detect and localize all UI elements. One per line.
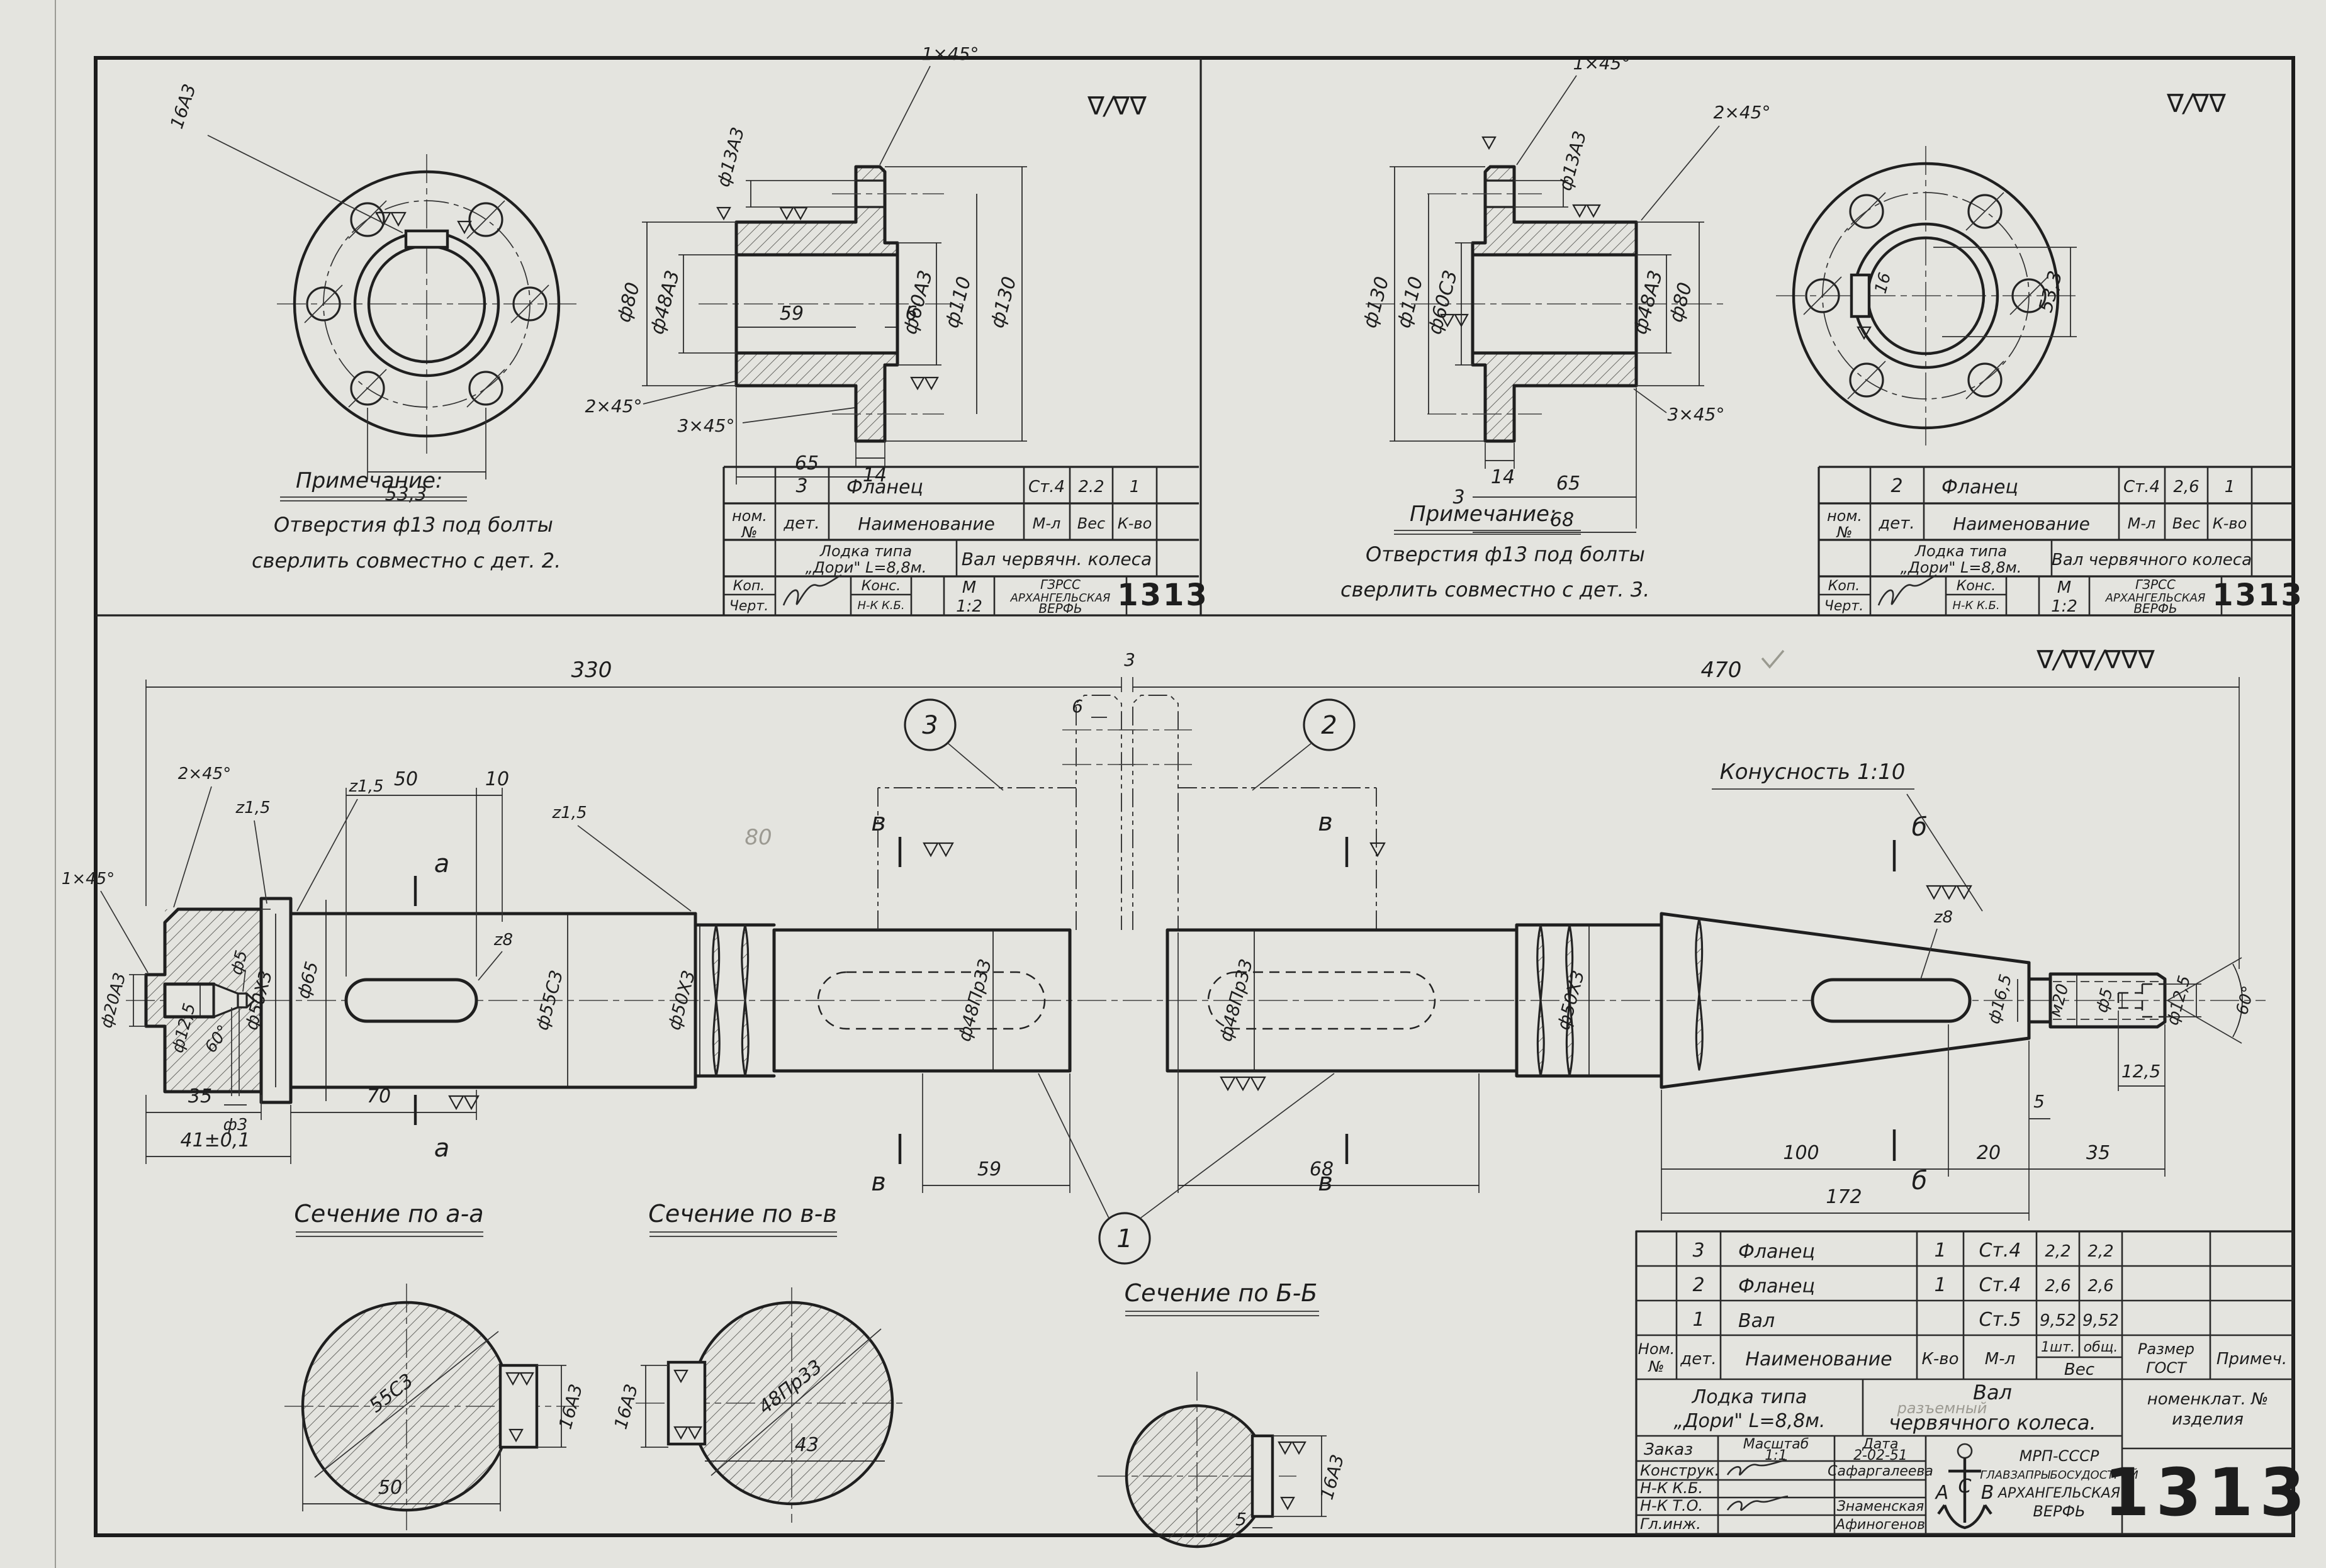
logo-letter-c: С	[1958, 1476, 1972, 1498]
tb-project1: Лодка типа	[1692, 1386, 1807, 1408]
tb-scale: 1:2	[956, 597, 982, 616]
finish-triangles-icon	[1927, 886, 1971, 899]
dim-d165: ф16,5	[1984, 972, 2016, 1026]
finish-triangle-icon	[1281, 1498, 1294, 1509]
finish-triangles-icon	[1221, 1077, 1265, 1090]
tb-part2: червячного колеса.	[1889, 1411, 2096, 1435]
tb-konstruk: Конструк.	[1640, 1462, 1719, 1479]
tb-zakaz: Заказ	[1644, 1440, 1693, 1459]
tb-glinzh: Гл.инж.	[1640, 1515, 1701, 1533]
tb-date: 2-02-51	[1853, 1448, 1907, 1464]
dim-53-3: 53,3	[2035, 269, 2067, 315]
tb-kons: Конс.	[862, 578, 901, 594]
tb-scale-label: М	[962, 578, 976, 597]
shaft-seat1: в в	[774, 808, 1070, 1197]
tb-project1: Лодка типа	[1914, 542, 2007, 560]
tb-qty: 1	[1130, 478, 1140, 496]
tb-project1: Лодка типа	[819, 542, 912, 560]
dim-35r: 35	[2086, 1142, 2110, 1164]
dim-d110: ф110	[1393, 274, 1427, 330]
tb-chert: Черт.	[1824, 598, 1863, 614]
tb-assembly: Вал червячн. колеса	[962, 549, 1152, 569]
row3-mat: Ст.5	[1979, 1309, 2021, 1331]
dim-keyway: 16	[1872, 271, 1896, 296]
dim-50: 50	[394, 768, 418, 790]
section-a-label-bottom: а	[434, 1134, 450, 1163]
dim-35l: 35	[188, 1085, 212, 1107]
dim-d130: ф130	[1359, 274, 1393, 330]
note-title: Примечание:	[296, 468, 442, 493]
finish-mark-tr: ∇/∇∇	[2166, 89, 2226, 118]
note-title: Примечание:	[1410, 501, 1556, 527]
logo-letter-v: В	[1981, 1482, 1994, 1504]
tb-scale: 1:2	[2051, 597, 2077, 616]
tb-nkkb: Н-К К.Б.	[1640, 1479, 1703, 1497]
tb-project2: „Дори" L=8,8м.	[1901, 559, 2022, 576]
dim-r8-right: z8	[1933, 908, 1953, 927]
tb-project2: „Дори" L=8,8м.	[806, 559, 927, 576]
tb-org3: ВЕРФЬ	[1038, 601, 1082, 616]
row3-w2: 9,52	[2082, 1311, 2119, 1330]
section-vv-label: Сечение по в-в	[648, 1200, 836, 1228]
tb-kons: Конс.	[1957, 578, 1996, 594]
flange3-section-view: 1×45° ф13А3 ф80 ф48А3 59 6 ф60А3 ф110 ф1…	[585, 43, 1027, 486]
dim-2x45: 2×45°	[178, 764, 231, 783]
shaft-55-section: а а	[291, 849, 695, 1163]
drawing-number: 1313	[2104, 1454, 2311, 1531]
dim-59: 59	[977, 1158, 1001, 1180]
dim-hole: ф13А3	[712, 125, 748, 189]
signature	[784, 575, 841, 605]
flange2-title-block: 2 Фланец Ст.4 2,6 1 ном. № дет. Наименов…	[1819, 467, 2304, 616]
tb-h-ves: Вес	[1077, 515, 1105, 532]
tb-h-no: №	[741, 524, 758, 541]
taper-note: Конусность 1:10	[1720, 759, 1906, 785]
tb-org1: ГЗРСС	[1040, 577, 1081, 592]
balloon-2-number: 2	[1321, 711, 1337, 740]
finish-triangles-icon	[780, 208, 807, 219]
logo-letter-a: А	[1935, 1482, 1949, 1504]
section-v-label-top: в	[871, 808, 886, 837]
keyway-notch	[500, 1365, 537, 1447]
row2-qty: 1	[1934, 1274, 1946, 1296]
tb-project2: „Дори" L=8,8м.	[1674, 1410, 1826, 1432]
h-ml: М-л	[1985, 1350, 2015, 1369]
note-line1: Отверстия ф13 под болты	[274, 513, 553, 537]
dim-65: 65	[795, 452, 819, 474]
dim-1x45: 1×45°	[62, 870, 115, 888]
tb-nkto: Н-К Т.О.	[1640, 1497, 1703, 1515]
row1-name: Фланец	[1738, 1241, 1815, 1263]
row2-det: 2	[1692, 1274, 1704, 1296]
h-sht: 1шт.	[2041, 1340, 2075, 1355]
tb-konstruk-name: Сафаргалеева	[1828, 1464, 1933, 1479]
tb-h-nom: ном.	[732, 507, 767, 525]
tb-kop: Коп.	[733, 578, 765, 594]
tb-h-kvo: К-во	[2213, 515, 2247, 532]
shaft-left-end	[146, 909, 261, 1096]
h-obsh: общ.	[2084, 1340, 2118, 1355]
dim-d5r: ф5	[2093, 986, 2117, 1014]
row3-name: Вал	[1738, 1310, 1775, 1332]
phantom-flange2	[1119, 695, 1376, 930]
note-line1: Отверстия ф13 под болты	[1366, 542, 1645, 566]
balloon-1-number: 1	[1116, 1224, 1132, 1253]
dim-70: 70	[367, 1085, 391, 1107]
tb-h-no: №	[1836, 524, 1853, 541]
note-line2: сверлить совместно с дет. 3.	[1340, 578, 1649, 602]
dim-100: 100	[1783, 1142, 1819, 1164]
dim-3: 3	[1124, 649, 1135, 670]
section-bb-label: Сечение по Б-Б	[1125, 1279, 1318, 1307]
row2-w2: 2,6	[2087, 1277, 2113, 1296]
dim-r15b: z1,5	[349, 777, 384, 796]
dim-chamfer2: 2×45°	[585, 396, 643, 417]
drawing-canvas: ∇/∇∇ ∇/∇∇ ∇/∇∇/∇∇∇ 16А3 53,3 1×45° ф13А3…	[0, 0, 2326, 1568]
flange3-title-block: 3 Фланец Ст.4 2.2 1 ном. № дет. Наименов…	[724, 467, 1209, 616]
row1-qty: 1	[1934, 1240, 1946, 1262]
tb-det-num: 3	[795, 475, 807, 497]
tb-h-name: Наименование	[1953, 513, 2090, 534]
section-v-label-bottom: в	[871, 1168, 886, 1197]
section-b-label-top: б	[1912, 813, 1928, 842]
finish-triangles-icon	[911, 378, 938, 389]
dim-5: 5	[2033, 1091, 2045, 1112]
h-gost: ГОСТ	[2146, 1359, 2188, 1377]
dim-r15c: z1,5	[552, 804, 587, 822]
tb-scale-label: М	[2057, 578, 2071, 597]
row1-det: 3	[1692, 1240, 1704, 1262]
keyway-notch	[668, 1362, 705, 1444]
shaft-seat2: в в	[1167, 808, 1517, 1197]
dim-chamfer1: 1×45°	[922, 43, 979, 64]
tb-weight: 2,6	[2173, 478, 2199, 496]
row2-mat: Ст.4	[1979, 1274, 2021, 1296]
dim-6: 6	[1072, 696, 1083, 717]
dim-chamfer3: 3×45°	[678, 415, 735, 436]
dim-16a3: 16А3	[554, 1382, 587, 1431]
finish-mark-tl: ∇/∇∇	[1087, 92, 1147, 121]
section-aa: Сечение по а-а 55С3 50 16А3	[284, 1200, 587, 1530]
dim-50sec: 50	[378, 1477, 402, 1499]
h-no: №	[1648, 1358, 1665, 1375]
dim-10: 10	[485, 768, 509, 790]
tb-h-ves: Вес	[2172, 515, 2200, 532]
h-det: дет.	[1680, 1350, 1716, 1369]
finish-triangles-icon	[449, 1096, 478, 1109]
section-aa-label: Сечение по а-а	[294, 1200, 483, 1228]
section-bb: Сечение по Б-Б 16А3 5	[1098, 1279, 1348, 1547]
flange3-front-view: 16А3 53,3	[166, 81, 576, 505]
tb-org3: ВЕРФЬ	[2133, 601, 2177, 616]
section-vv: Сечение по в-в 48Пр33 16А3 43	[610, 1200, 906, 1523]
dim-chamfer2: 2×45°	[1714, 102, 1771, 123]
dim-d20: ф20А3	[97, 971, 130, 1030]
pencil-checkmark	[1762, 651, 1784, 667]
h-name: Наименование	[1745, 1348, 1892, 1370]
tb-det-num: 2	[1891, 475, 1902, 497]
h-kvo: К-во	[1921, 1350, 1958, 1369]
finish-triangle-icon	[1483, 137, 1495, 148]
shaft-dimensions: 330 3 470 6 3 2 1 1×45° 2×45° z1,5 z1,5 …	[62, 649, 2259, 1263]
tb-kop: Коп.	[1828, 578, 1860, 594]
tb-org1: ГЗРСС	[2135, 577, 2176, 592]
tb-chert: Черт.	[729, 598, 768, 614]
dim-d130: ф130	[986, 274, 1021, 330]
dim-14: 14	[1491, 466, 1515, 488]
flange2-front-view: 16 53,3	[1776, 146, 2077, 445]
h-ves: Вес	[2064, 1360, 2094, 1379]
tb-part-name: Фланец	[846, 476, 923, 498]
dim-41: 41±0,1	[180, 1129, 250, 1151]
tb-nkto-name: Знаменская	[1837, 1499, 1924, 1515]
dim-d80: ф80	[1665, 280, 1697, 325]
row1-w1: 2,2	[2045, 1242, 2070, 1261]
dim-keyway: 16А3	[166, 81, 200, 131]
finish-triangles-icon	[924, 843, 953, 856]
signature-konstruk	[1728, 1460, 1787, 1475]
tb-h-mat: М-л	[2128, 515, 2156, 532]
tb-material: Ст.4	[2123, 478, 2160, 496]
tb-assembly: Вал червячного колеса	[2052, 551, 2252, 569]
tb-h-nom: ном.	[1827, 507, 1862, 525]
row2-w1: 2,6	[2045, 1277, 2070, 1296]
dim-d48: ф48А3	[646, 268, 685, 337]
dim-chamfer3: 3×45°	[1668, 404, 1725, 425]
signature	[1879, 575, 1936, 605]
tb-h-det: дет.	[783, 514, 819, 533]
dim-470: 470	[1701, 658, 1742, 683]
tb-qty: 1	[2225, 478, 2235, 496]
h-razmer: Размер	[2138, 1340, 2194, 1358]
finish-mark-main: ∇/∇∇/∇∇∇	[2036, 646, 2155, 675]
tb-h-mat: М-л	[1033, 515, 1061, 532]
h-nomen1: номенклат. №	[2147, 1390, 2269, 1409]
main-title-block: 3 Фланец 1 Ст.4 2,2 2,2 2 Фланец 1 Ст.4 …	[1636, 1231, 2312, 1534]
dim-d80: ф80	[613, 280, 644, 325]
tb-nkkb: Н-К К.Б.	[857, 599, 904, 612]
section-a-label-top: а	[434, 849, 450, 878]
dim-d110: ф110	[941, 274, 975, 330]
flange2-note: Примечание: Отверстия ф13 под болты свер…	[1340, 501, 1649, 602]
finish-triangle-icon	[1371, 843, 1385, 856]
tb-h-det: дет.	[1878, 514, 1914, 533]
dim-330: 330	[571, 658, 612, 683]
keyway-notch	[1252, 1436, 1273, 1516]
tb-h-kvo: К-во	[1118, 515, 1152, 532]
balloon-3-number: 3	[922, 711, 938, 740]
tb-number: 1313	[1117, 578, 1209, 613]
dim-d65: ф65	[293, 959, 322, 1000]
flange2-section-view: 1×45° ф13А3 2×45° ф130 ф110 ф60С3 ф48А3 …	[1359, 53, 1770, 532]
shaft-view: а а в в в в	[62, 649, 2266, 1263]
tb-part-name: Фланец	[1941, 476, 2018, 498]
dim-12-5: 12,5	[2121, 1061, 2160, 1082]
phantom-flange3	[878, 695, 1135, 930]
dim-hole: ф13А3	[1554, 129, 1590, 193]
row3-det: 1	[1692, 1309, 1704, 1331]
keyway-slot	[1851, 275, 1869, 316]
dim-65: 65	[1556, 473, 1580, 495]
section-b-label-bottom: б	[1912, 1167, 1928, 1196]
row1-w2: 2,2	[2087, 1242, 2113, 1261]
tb-h-name: Наименование	[858, 513, 995, 534]
finish-triangle-icon	[717, 208, 730, 219]
corner-mark	[9, 19, 35, 55]
dim-d60: ф60С3	[1424, 268, 1462, 337]
dim-68: 68	[1310, 1158, 1334, 1180]
dim-60deg-r: 60°	[2233, 984, 2259, 1017]
row2-name: Фланец	[1738, 1275, 1815, 1297]
dim-r15a: z1,5	[235, 798, 271, 817]
drawing-sheet: ∇/∇∇ ∇/∇∇ ∇/∇∇/∇∇∇ 16А3 53,3 1×45° ф13А3…	[0, 0, 2326, 1568]
row1-mat: Ст.4	[1979, 1240, 2021, 1262]
dim-172: 172	[1826, 1186, 1862, 1208]
dim-20: 20	[1977, 1142, 2001, 1164]
row3-w1: 9,52	[2040, 1311, 2076, 1330]
dim-5: 5	[1235, 1509, 1247, 1530]
shaft-taper: б б	[1661, 813, 2029, 1196]
finish-triangles-icon	[376, 213, 405, 225]
dim-chamfer1: 1×45°	[1573, 53, 1631, 74]
finish-triangles-icon	[1573, 205, 1600, 216]
dim-16a3: 16А3	[610, 1382, 642, 1431]
dim-r8-left: z8	[493, 931, 513, 949]
finish-triangles-icon	[1279, 1442, 1305, 1453]
dim-59: 59	[780, 303, 804, 325]
org-line4: ВЕРФЬ	[2033, 1503, 2085, 1520]
org-line3: АРХАНГЕЛЬСКАЯ	[1997, 1486, 2120, 1501]
pencil-80: 80	[744, 825, 772, 850]
dim-43: 43	[795, 1434, 819, 1456]
keyway-slot	[406, 231, 447, 247]
h-nomen2: изделия	[2172, 1410, 2244, 1429]
tb-material: Ст.4	[1028, 478, 1065, 496]
org-line1: МРП-СССР	[2020, 1447, 2099, 1465]
h-primech: Примеч.	[2216, 1350, 2287, 1369]
tb-nkkb: Н-К К.Б.	[1952, 599, 1999, 612]
h-nom: Ном.	[1638, 1340, 1675, 1358]
section-v-label-top: в	[1318, 808, 1333, 837]
flange3-note: Примечание: Отверстия ф13 под болты свер…	[252, 468, 561, 573]
tb-weight: 2.2	[1078, 478, 1104, 496]
note-line2: сверлить совместно с дет. 2.	[252, 549, 561, 573]
tb-number: 1313	[2212, 578, 2304, 613]
shipyard-logo: А С В	[1935, 1444, 1994, 1528]
tb-glinzh-name: Афиногенов	[1834, 1517, 1925, 1533]
dim-16a3: 16А3	[1316, 1452, 1348, 1502]
